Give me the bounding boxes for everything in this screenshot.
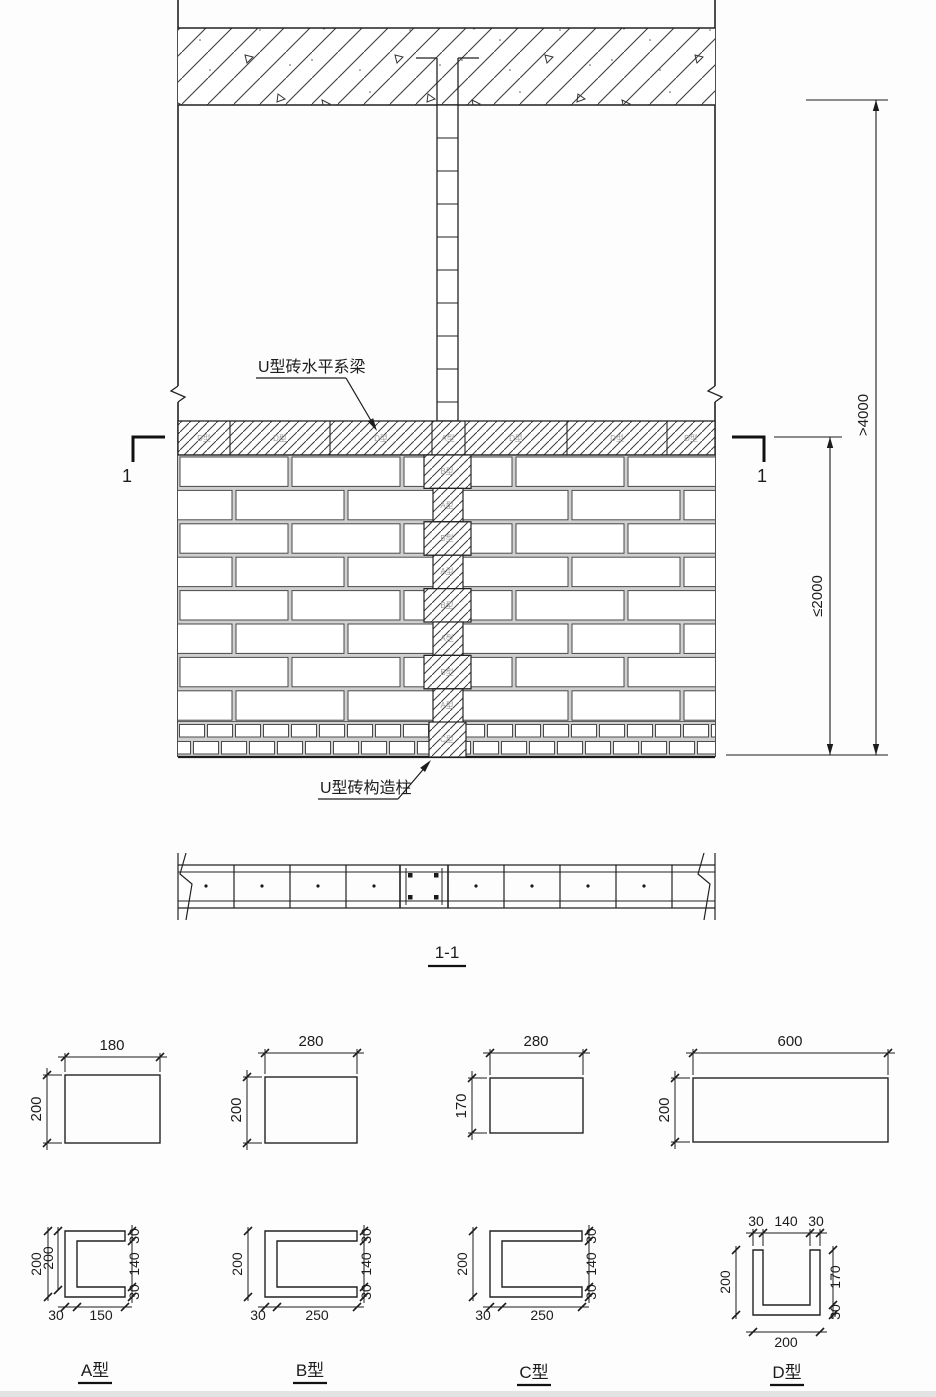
a-u-right-top: 30 [126,1228,142,1244]
concrete-slab [178,28,715,105]
c-plan-width: 280 [523,1033,548,1050]
type-label-c: C型 [519,1363,548,1382]
dim-lower-height: ≤2000 [809,575,826,617]
a-u-bottom-wall: 30 [48,1307,64,1323]
d-u-top-right: 30 [808,1213,824,1229]
section-marker-right: 1 [732,437,767,486]
c-u-right-bottom: 30 [583,1284,599,1300]
c-u-bottom-wall: 30 [475,1307,491,1323]
column-label: U型砖构造柱 [320,779,412,797]
b-u-bottom-wall: 30 [250,1307,266,1323]
column-block-marks: B型 A型 B型 A型 B型 A型 B型 A型 C型 [440,467,454,744]
type-label-a: A型 [81,1361,109,1380]
section-cut-number: 1 [757,466,767,486]
bottom-edge-shade [0,1391,936,1397]
detail-a: 180 200 200 200 30 150 30 140 30 A型 [28,1037,167,1383]
wall-elevation: D型 D型 D型 A型 D型 D型 D型 [122,0,888,799]
beam-block-mark: D型 [509,434,523,443]
section-1-1: 1-1 [178,853,715,966]
type-label-b: B型 [296,1361,324,1380]
d-u-top-mid: 140 [774,1213,798,1229]
section-label: 1-1 [435,943,460,962]
beam-block-mark: D型 [610,434,624,443]
column-block-mark: B型 [440,534,453,543]
column-callout: U型砖构造柱 [318,760,431,799]
b-u-left: 200 [229,1252,245,1276]
column-block-mark: B型 [440,668,453,677]
drawing-page: D型 D型 D型 A型 D型 D型 D型 [0,0,936,1397]
c-plan-height: 170 [453,1093,470,1118]
column-block-mark: B型 [440,601,453,610]
a-u-right-bottom: 30 [126,1284,142,1300]
section-cut-number: 1 [122,466,132,486]
b-u-bottom-opening: 250 [305,1307,329,1323]
d-u-top-left: 30 [748,1213,764,1229]
column-block-mark: A型 [440,501,453,510]
column-block-mark: B型 [440,467,453,476]
a-u-bottom-opening: 150 [89,1307,113,1323]
tie-beam-callout: U型砖水平系梁 [256,358,377,431]
c-plan-rect [490,1078,583,1133]
d-plan-width: 600 [777,1033,802,1050]
column-block-mark: A型 [440,567,453,576]
a-plan-rect [65,1075,160,1143]
d-u-bottom: 200 [774,1334,798,1350]
type-label-d: D型 [772,1363,801,1382]
beam-block-mark: D型 [684,434,698,443]
b-u-section [265,1231,357,1297]
beam-block-mark: D型 [374,434,388,443]
tie-beam: D型 D型 D型 A型 D型 D型 D型 [178,421,715,455]
c-u-left: 200 [454,1252,470,1276]
c-u-section [490,1231,582,1297]
detail-b: 280 200 200 30 250 30 140 30 B型 [228,1033,374,1383]
dim-overall-height: >4000 [855,394,872,436]
d-u-right-lower: 30 [827,1304,843,1320]
d-plan-height: 200 [656,1097,673,1122]
upper-column [437,105,458,421]
b-plan-width: 280 [298,1033,323,1050]
b-u-right-bottom: 30 [358,1284,374,1300]
b-u-right-mid: 140 [358,1252,374,1276]
construction-drawing: D型 D型 D型 A型 D型 D型 D型 [0,0,936,1397]
detail-d: 600 200 30 140 30 200 170 30 200 D型 [656,1033,895,1385]
detail-c: 280 170 200 30 250 30 140 30 C型 [453,1033,599,1385]
column-block-mark: C型 [440,735,454,744]
b-plan-height: 200 [228,1097,245,1122]
c-u-right-mid: 140 [583,1252,599,1276]
beam-block-mark: D型 [273,434,287,443]
c-u-bottom-opening: 250 [530,1307,554,1323]
a-plan-height: 200 [28,1096,45,1121]
d-u-left: 200 [717,1270,733,1294]
c-u-right-top: 30 [583,1228,599,1244]
rebar-dots [204,873,645,900]
tie-beam-label: U型砖水平系梁 [258,358,366,376]
column-block-mark: A型 [440,701,453,710]
a-plan-width: 180 [99,1037,124,1054]
d-plan-rect [693,1078,888,1142]
b-plan-rect [265,1077,357,1143]
beam-block-mark: D型 [197,434,211,443]
column-block-mark: A型 [440,634,453,643]
section-marker-left: 1 [122,437,165,486]
a-u-left-inner: 200 [40,1246,56,1270]
a-u-section [65,1231,125,1297]
a-u-right-mid: 140 [126,1252,142,1276]
b-u-right-top: 30 [358,1228,374,1244]
d-u-section [753,1250,820,1315]
beam-block-mark: A型 [441,434,454,443]
d-u-right-upper: 170 [827,1265,843,1289]
